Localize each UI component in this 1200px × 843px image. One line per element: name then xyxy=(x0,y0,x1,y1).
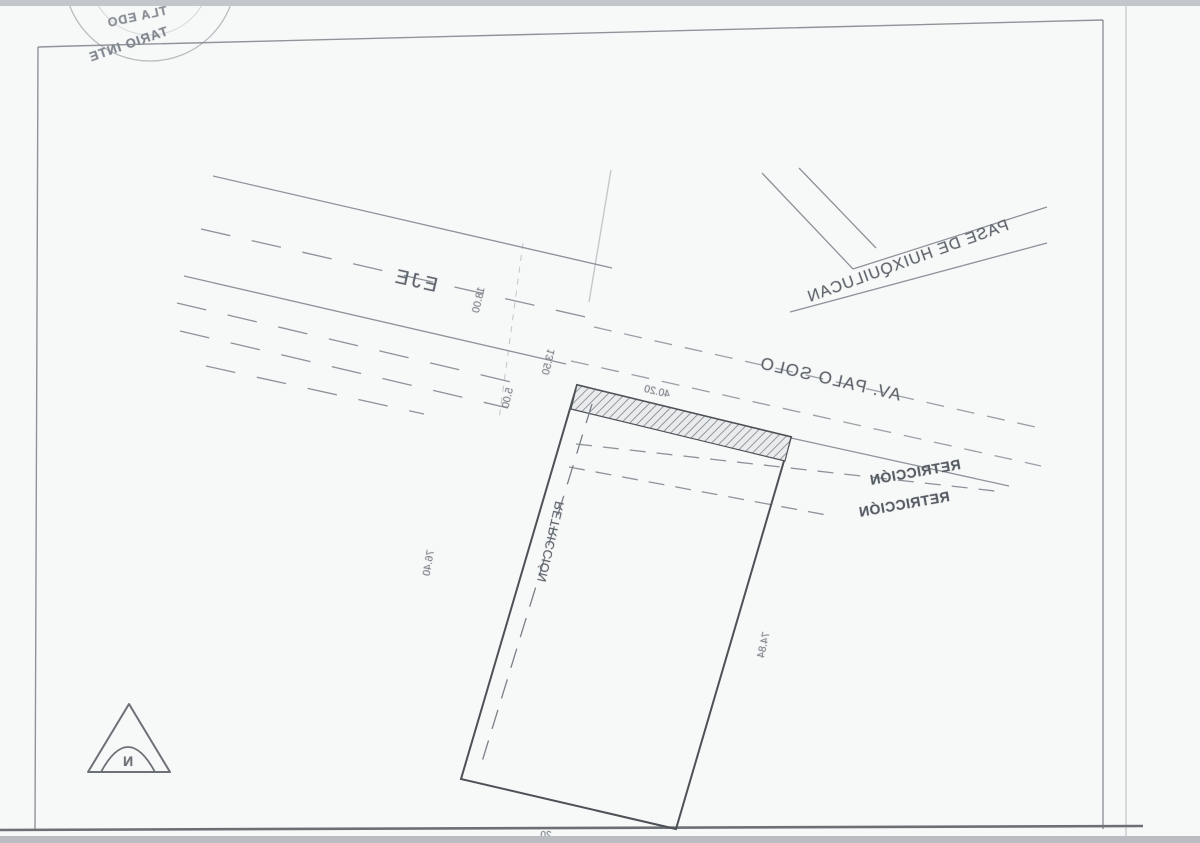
scan-edge-bottom xyxy=(0,836,1200,843)
scanned-site-plan: TLA EDO TARIO INTE EJE AV. PALO SOLO PAS… xyxy=(0,0,1200,843)
scan-edge-top xyxy=(0,0,1200,6)
plan-drawing xyxy=(0,0,1200,843)
eje-road-lines xyxy=(177,170,612,420)
sheet-frame xyxy=(0,0,1143,843)
north-arrow-label: N xyxy=(123,754,133,768)
hatched-frontage-strip xyxy=(571,385,791,461)
palo-solo-road-lines xyxy=(571,327,1044,466)
lot-polygon xyxy=(461,385,791,829)
